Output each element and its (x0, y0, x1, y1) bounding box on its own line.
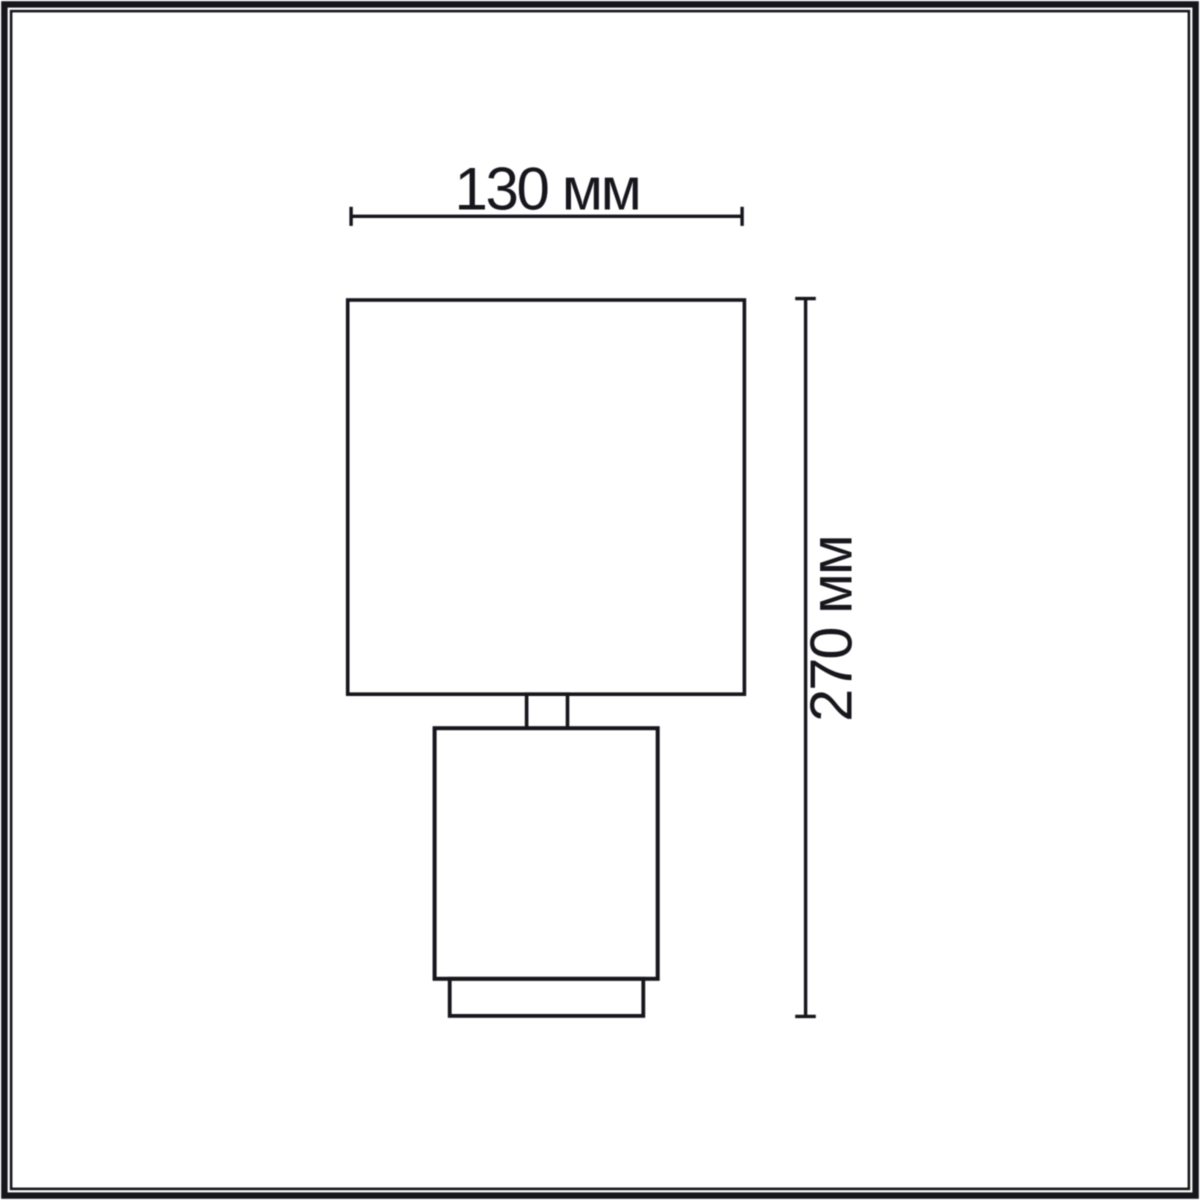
svg-text:130 мм: 130 мм (455, 156, 640, 223)
svg-text:270 мм: 270 мм (798, 536, 865, 722)
